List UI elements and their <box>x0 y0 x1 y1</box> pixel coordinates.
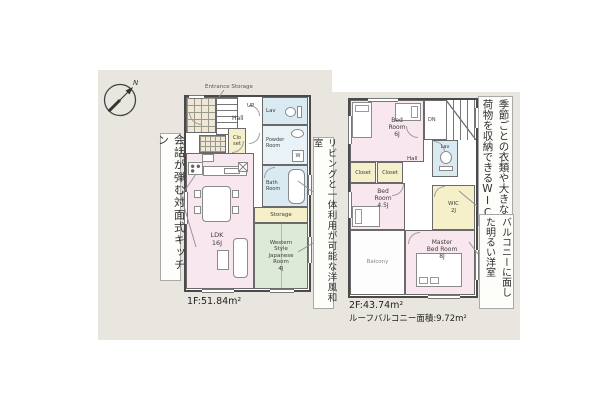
stair-treads <box>446 100 476 140</box>
up-label: UP <box>247 103 254 110</box>
door-arc <box>249 133 260 144</box>
balcony-label: Balcony <box>367 259 389 266</box>
toilet-bowl-icon <box>440 151 452 164</box>
stairs-down: DN <box>424 100 475 140</box>
refrigerator-icon <box>202 154 214 162</box>
lav-label: Lav <box>266 108 276 115</box>
window <box>348 116 352 144</box>
bed-icon <box>352 102 372 138</box>
floor-1-area-label: 1F:51.84m² <box>187 296 241 307</box>
window <box>270 289 294 293</box>
wic-annotation: 季節ごとの衣類や大きな荷物を収納できるWIC <box>478 96 513 226</box>
powder-room: Powder Room W <box>262 125 308 165</box>
window <box>189 95 204 99</box>
coffee-table-icon <box>217 250 229 270</box>
lav-label: Lav <box>433 144 457 150</box>
entrance-storage-label: Entrance Storage <box>205 84 253 90</box>
window <box>428 295 460 299</box>
japanese-room-annotation: リビングと一体利用が可能な洋風和室 <box>313 137 334 309</box>
toilet-tank-icon <box>297 106 302 118</box>
pillow-icon <box>430 277 439 284</box>
balcony-room-annotation: バルコニーに面した明るい洋室 <box>479 214 514 309</box>
toilet-bowl-icon <box>285 107 296 117</box>
master-bedroom: Master Bed Room 8J <box>405 230 475 295</box>
powder-room-label: Powder Room <box>266 137 284 149</box>
window <box>202 289 234 293</box>
hall-label: Hall <box>232 115 244 122</box>
floor-1-plan: UP Hall Lav Clo set Powder Room W Bath R… <box>184 95 311 292</box>
chair-icon <box>232 190 239 198</box>
entrance-hall-tile <box>199 135 226 153</box>
closet-label: Clo set <box>233 135 241 147</box>
kitchen-annotation: 会話が弾む対面式キッチン <box>160 133 181 281</box>
closet-label: Closet <box>355 170 371 176</box>
lavatory-room-1f: Lav <box>262 97 308 125</box>
dining-table-icon <box>202 186 231 222</box>
balcony: Balcony <box>350 230 405 295</box>
japanese-room: Western Style Japanese Room 4J <box>254 223 308 289</box>
closet-label: Closet <box>382 170 398 176</box>
ldk-room: LDK 16J <box>186 153 254 289</box>
floor-2-plan: Bed Room 6J DN Lav Hall Closet Closet Be… <box>348 98 478 298</box>
bedroom-6j-label: Bed Room 6J <box>375 117 419 139</box>
pillow-icon <box>419 277 428 284</box>
storage-label: Storage <box>270 212 292 219</box>
window <box>348 192 352 218</box>
bedroom-4-5j: Bed Room 4.5J <box>350 183 405 230</box>
toilet-tank-icon <box>439 166 453 171</box>
wic-label: WIC 2J <box>448 201 459 214</box>
roof-balcony-area-label: ルーフバルコニー面積:9.72m² <box>349 312 467 324</box>
bedroom-4-5j-label: Bed Room 4.5J <box>363 188 403 210</box>
pillar-icon <box>238 162 248 172</box>
window <box>475 250 479 280</box>
master-bedroom-label: Master Bed Room 8J <box>416 239 468 261</box>
pillow-icon <box>355 105 369 112</box>
bedroom-6j: Bed Room 6J <box>350 100 424 162</box>
chair-icon <box>232 206 239 214</box>
closet-left: Closet <box>350 162 376 183</box>
japanese-room-label: Western Style Japanese Room 4J <box>269 240 294 273</box>
chair-icon <box>194 190 201 198</box>
window <box>368 98 398 102</box>
sink-icon <box>291 129 304 138</box>
hall-label: Hall <box>407 156 418 163</box>
chair-icon <box>194 206 201 214</box>
lavatory-room-2f: Lav <box>432 140 458 177</box>
washing-machine-icon: W <box>292 150 304 162</box>
floor-plan-image: UP Hall Lav Clo set Powder Room W Bath R… <box>0 0 600 400</box>
paper-panel-notch <box>332 70 520 92</box>
storage-1f: Storage <box>254 207 308 223</box>
stove-icon <box>188 162 203 175</box>
bath-room-label: Bath Room <box>266 180 280 192</box>
closet-right: Closet <box>377 162 403 183</box>
dn-label: DN <box>428 117 436 123</box>
bathtub-icon <box>288 169 305 204</box>
floor-2-area-label: 2F:43.74m² <box>349 300 403 311</box>
ldk-label: LDK 16J <box>195 232 239 248</box>
pillow-icon <box>355 209 362 224</box>
